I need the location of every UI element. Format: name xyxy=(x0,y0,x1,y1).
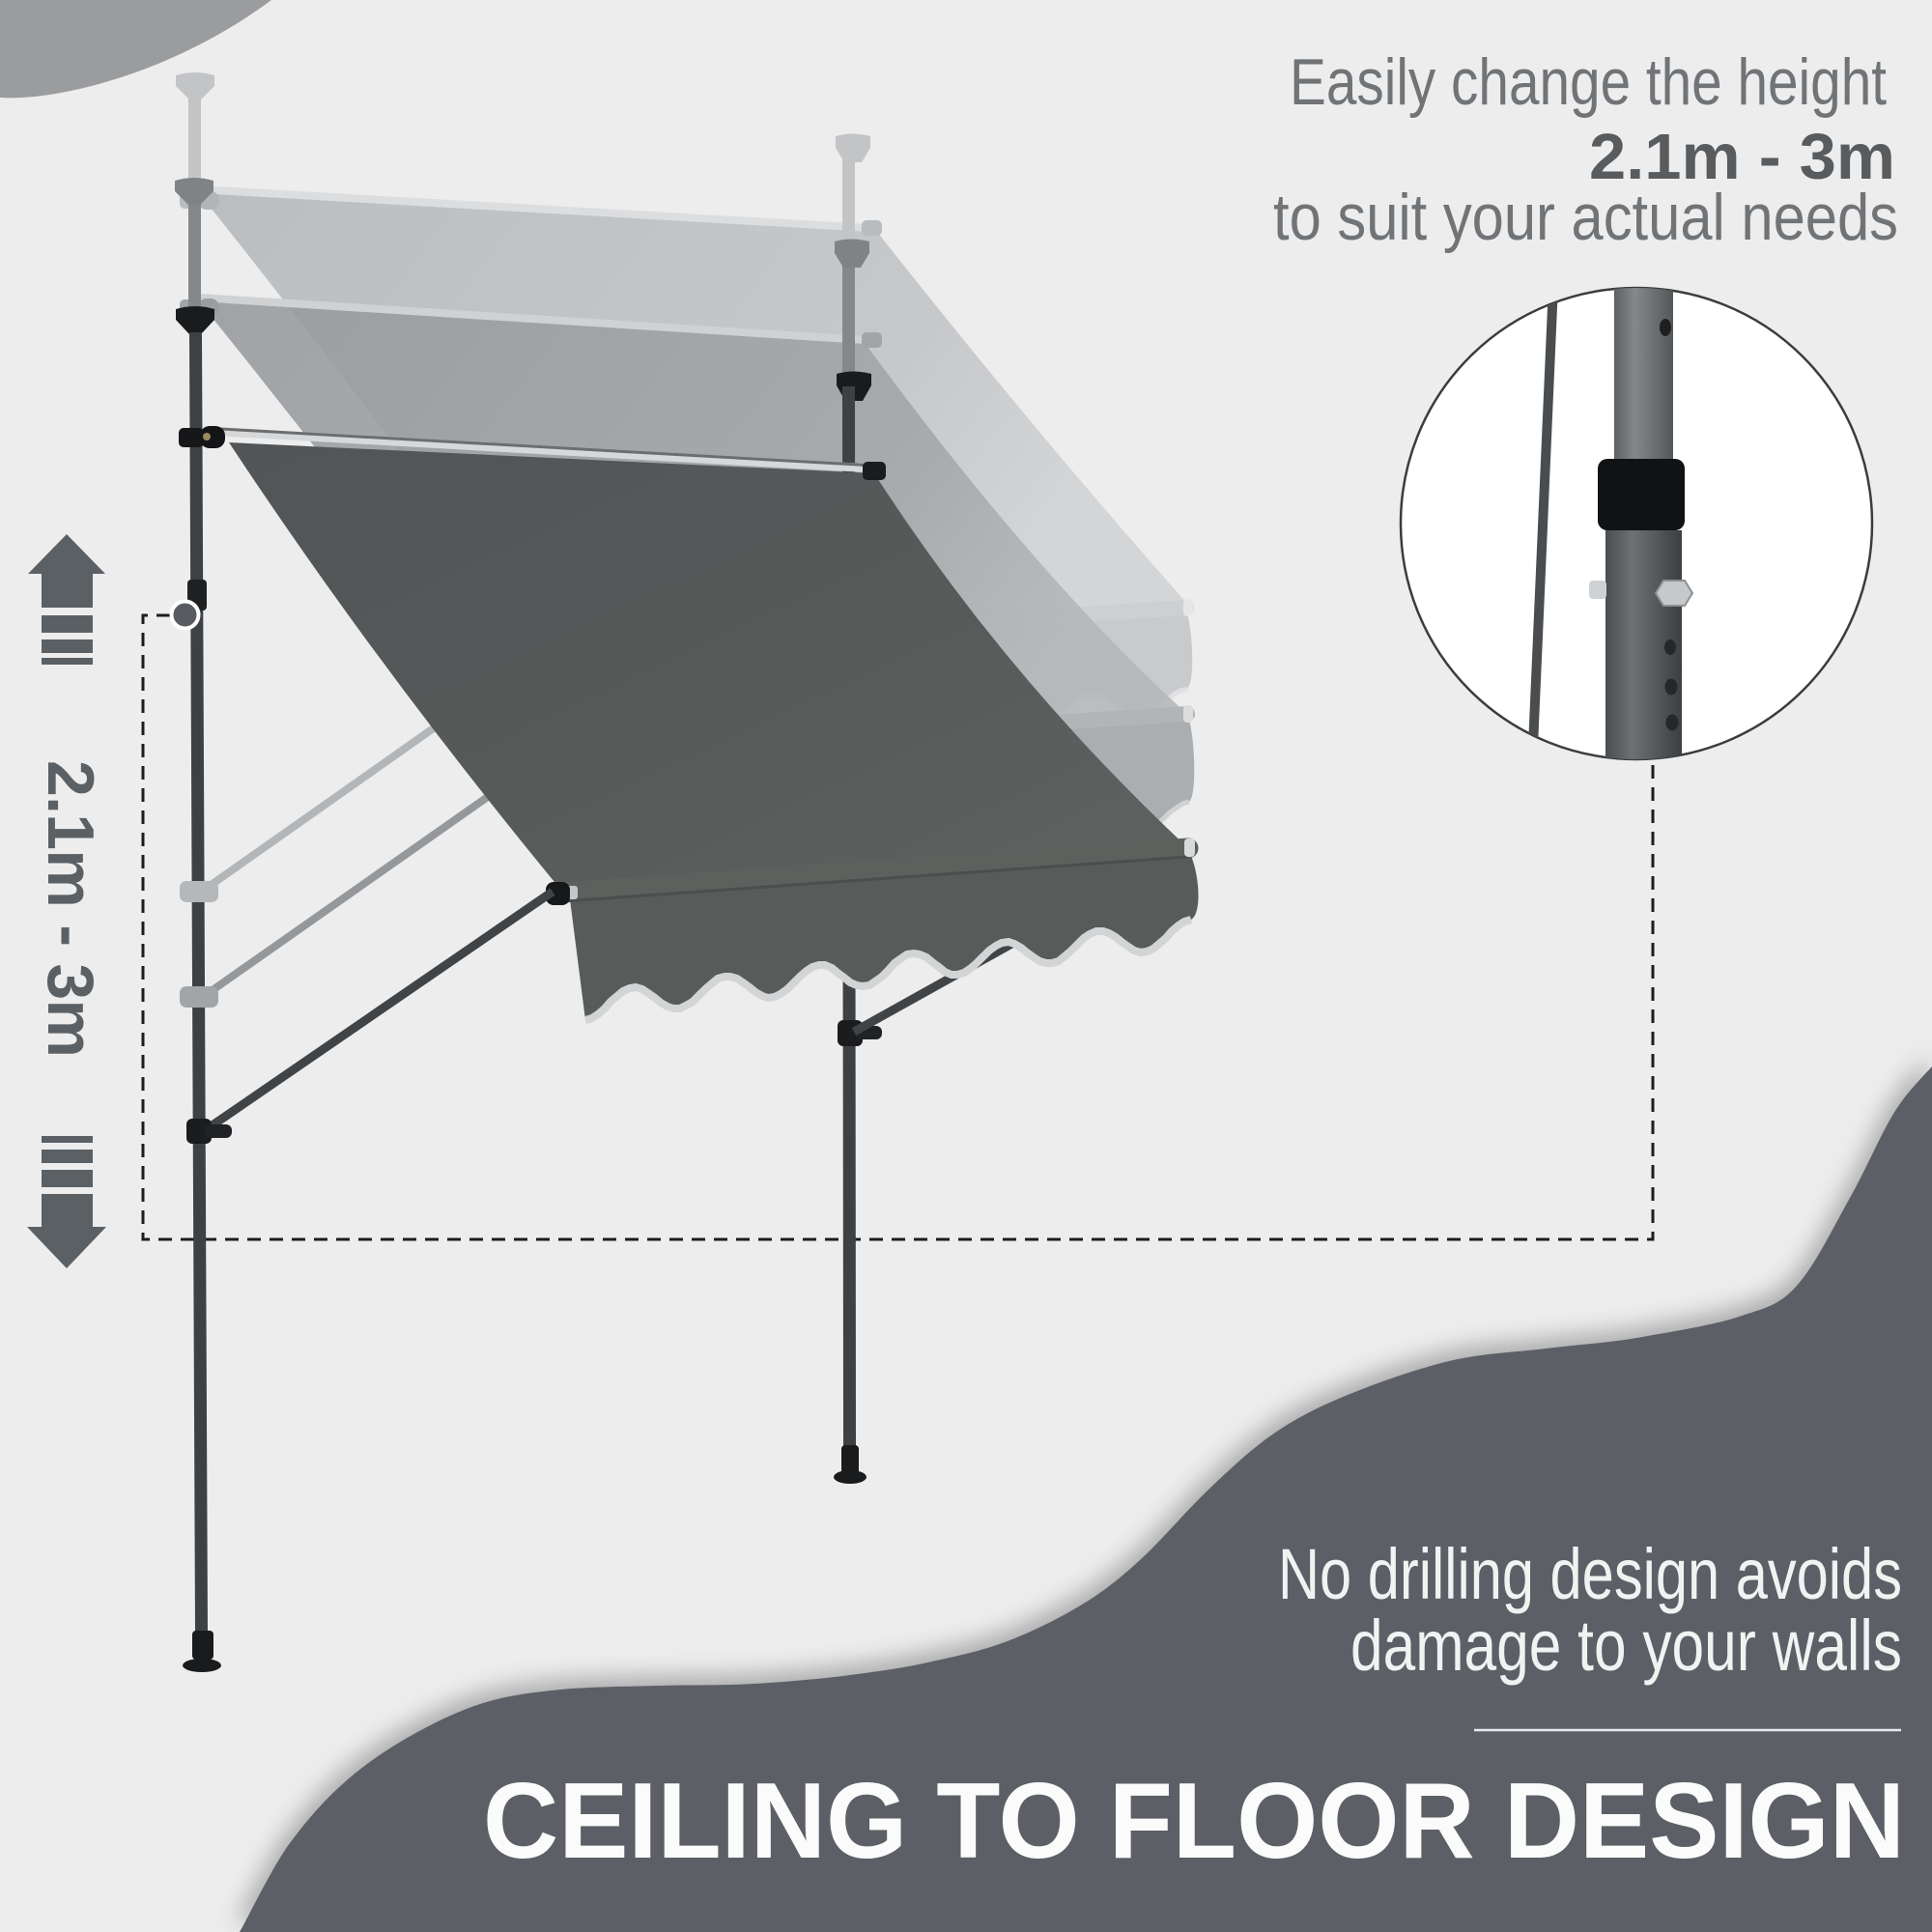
svg-text:No drilling design avoids: No drilling design avoids xyxy=(1278,1534,1902,1614)
svg-text:2.1m - 3m: 2.1m - 3m xyxy=(34,760,107,1058)
svg-text:CEILING TO FLOOR DESIGN: CEILING TO FLOOR DESIGN xyxy=(483,1761,1905,1881)
svg-text:to suit your actual needs: to suit your actual needs xyxy=(1273,181,1898,254)
svg-text:Easily change the height: Easily change the height xyxy=(1290,45,1887,119)
svg-text:damage to your walls: damage to your walls xyxy=(1350,1605,1902,1686)
